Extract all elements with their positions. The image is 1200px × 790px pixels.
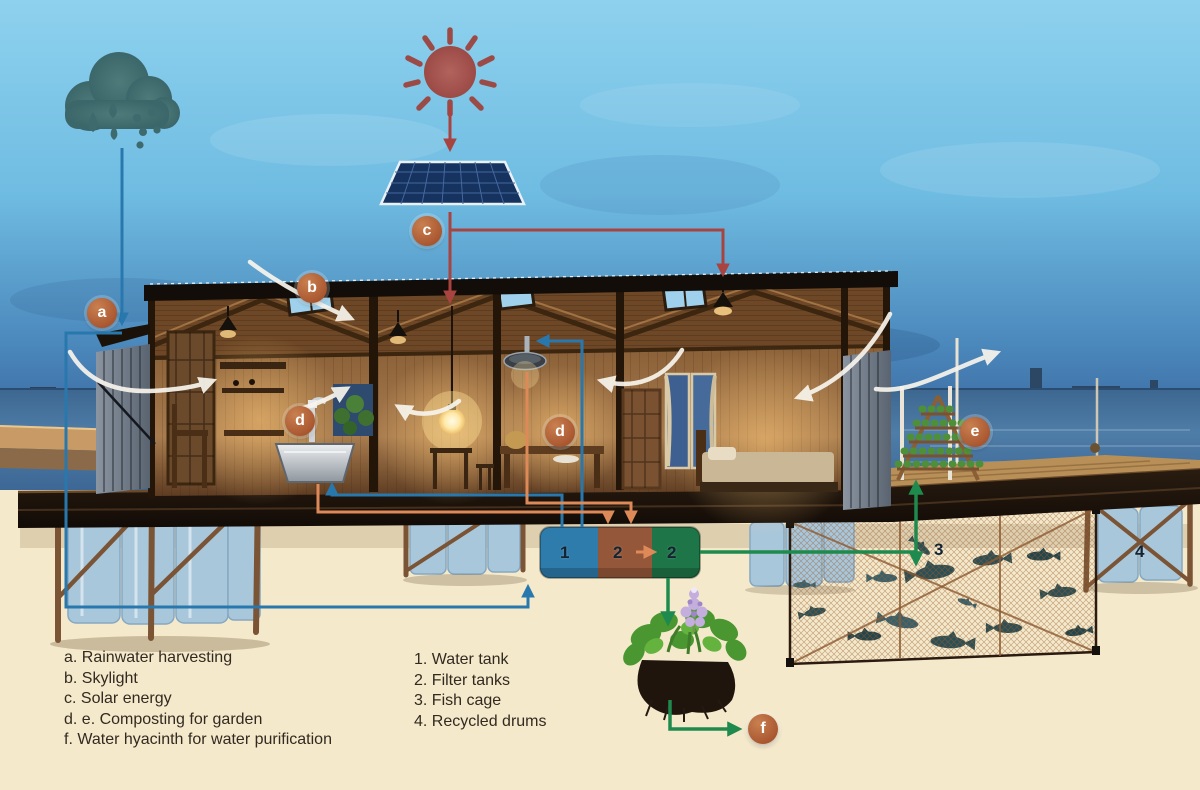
floating-house-infographic: a b c d d e f 1 2 2 3 4 a. Rainwater har… [0,0,1200,790]
legend-item: b. Skylight [64,669,332,690]
site-number-3: 3 [934,540,943,560]
legend-item: 3. Fish cage [414,691,547,712]
marker-b: b [297,273,327,303]
bedroom-door [623,390,660,488]
legend-systems: a. Rainwater harvesting b. Skylight c. S… [64,648,332,751]
marker-e: e [960,417,990,447]
legend-item: a. Rainwater harvesting [64,648,332,669]
legend-item: 2. Filter tanks [414,671,547,692]
legend-item: 4. Recycled drums [414,712,547,733]
shutter-door-right [843,350,891,510]
site-number-4: 4 [1135,542,1144,562]
legend-components: 1. Water tank 2. Filter tanks 3. Fish ca… [414,650,547,732]
tank-number-1: 1 [560,543,569,563]
legend-item: 1. Water tank [414,650,547,671]
marker-a: a [87,298,117,328]
tank-number-2b: 2 [667,543,676,563]
legend-item: f. Water hyacinth for water purification [64,730,332,751]
marker-f: f [748,714,778,744]
marker-d-shower: d [545,417,575,447]
legend-item: d. e. Composting for garden [64,710,332,731]
marker-c: c [412,216,442,246]
tank-number-2a: 2 [613,543,622,563]
shutter-door-left [96,344,155,494]
solar-panel-icon [381,162,524,204]
marker-d-sink: d [285,406,315,436]
legend-item: c. Solar energy [64,689,332,710]
fish-cage [786,504,1100,667]
